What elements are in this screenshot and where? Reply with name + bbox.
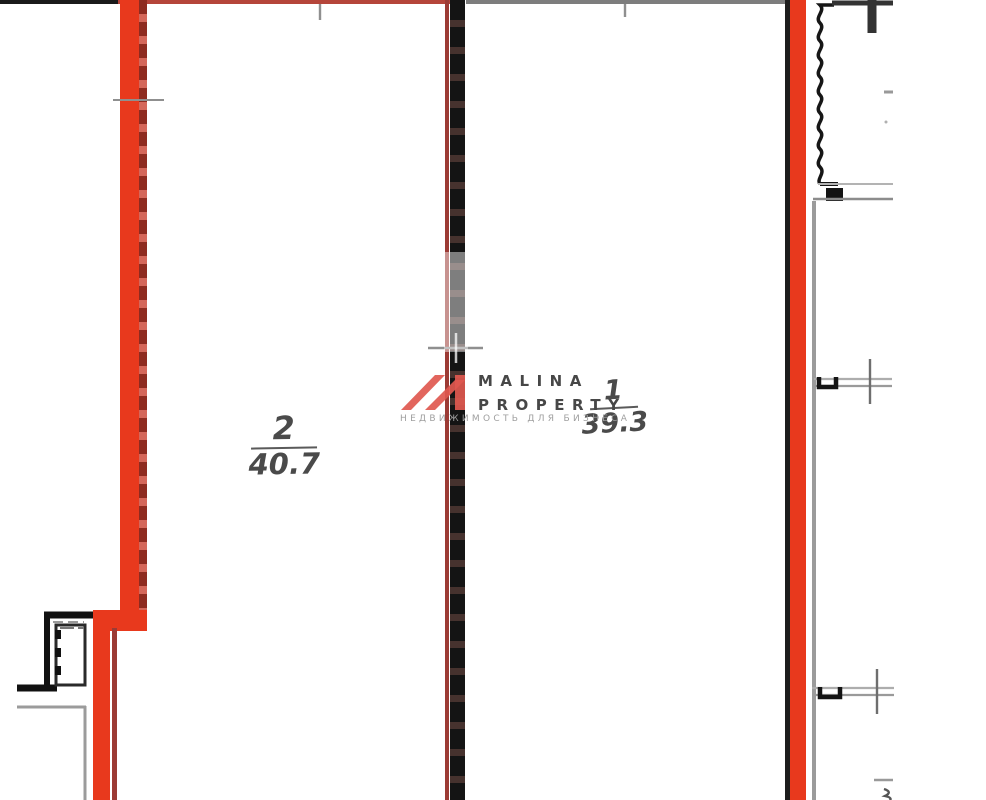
- left-lower-highlight-wall: [93, 631, 110, 800]
- window-symbol-upper: [814, 359, 892, 404]
- left-lower-wall-edge: [112, 628, 117, 800]
- right-highlight-wall: [790, 0, 806, 800]
- watermark-tagline: НЕДВИЖИМОСТЬ ДЛЯ БИЗНЕСА: [400, 414, 630, 424]
- left-wall-dashed-edge: [139, 0, 147, 613]
- room-number: 2: [235, 411, 332, 445]
- watermark: MALINA PROPERTY НЕДВИЖИМОСТЬ ДЛЯ БИЗНЕСА: [398, 368, 604, 428]
- insulation-squiggle-line: [818, 5, 834, 184]
- left-wall-jog: [93, 610, 147, 631]
- right-facade-top: [813, 0, 893, 201]
- floor-plan-canvas: 2 40.7 1 39.3 MALINA PROPERTY НЕДВИЖИМОС…: [0, 0, 986, 800]
- brand-line-1: MALINA: [478, 374, 627, 389]
- room-area: 40.7: [236, 449, 332, 480]
- watermark-brand: MALINA PROPERTY: [478, 374, 627, 413]
- dimension-ticks: [113, 4, 625, 363]
- top-wall-red-segment: [118, 0, 450, 4]
- malina-property-logo-icon: [400, 372, 472, 416]
- top-wall-black-segment: [0, 0, 118, 4]
- bottom-left-shaft: [17, 612, 93, 800]
- top-wall-gray-segment: [466, 0, 786, 4]
- brand-line-2: PROPERTY: [478, 398, 627, 413]
- left-highlight-wall: [120, 0, 139, 613]
- facade-line: [812, 201, 816, 800]
- window-symbol-lower: [812, 669, 894, 714]
- bottom-right-marks: [874, 780, 893, 800]
- room-label-2: 2 40.7: [235, 411, 332, 480]
